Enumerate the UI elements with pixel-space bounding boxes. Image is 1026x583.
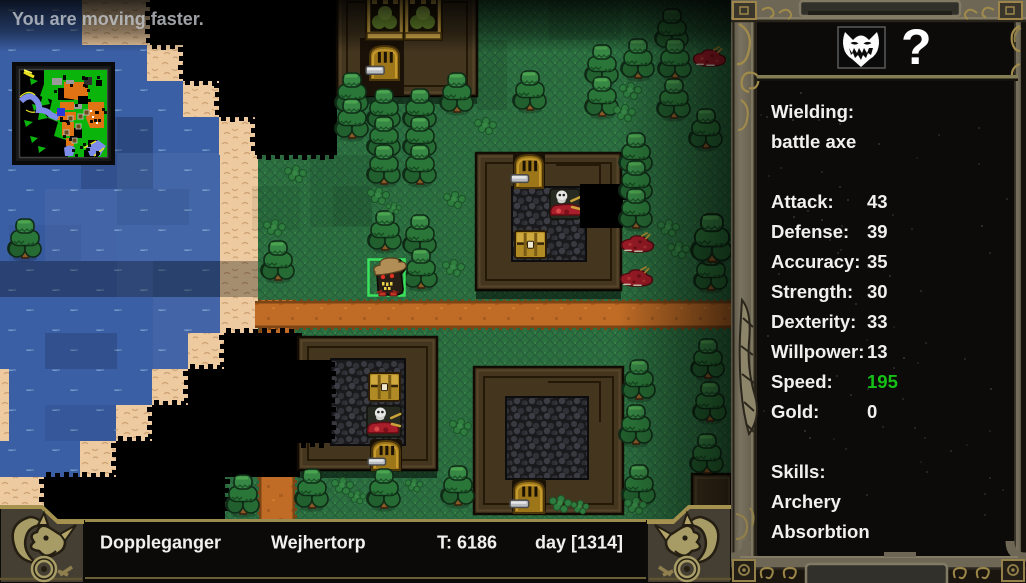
svg-text:39: 39 [867,221,888,242]
svg-text:Attack:: Attack: [771,191,834,212]
svg-text:33: 33 [867,311,888,332]
svg-text:Wejhertorp: Wejhertorp [271,533,366,553]
svg-text:Accuracy:: Accuracy: [771,251,860,272]
svg-text:Defense:: Defense: [771,221,849,242]
svg-text:day [1314]: day [1314] [535,533,623,553]
svg-text:battle axe: battle axe [771,131,856,152]
svg-text:Archery: Archery [771,491,842,512]
svg-text:Willpower:: Willpower: [771,341,864,362]
svg-text:You are moving faster.: You are moving faster. [12,9,204,29]
svg-text:Skills:: Skills: [771,461,826,482]
svg-text:Doppleganger: Doppleganger [100,533,221,553]
svg-text:Wielding:: Wielding: [771,101,854,122]
svg-text:Dexterity:: Dexterity: [771,311,856,332]
svg-text:Absorbtion: Absorbtion [771,521,870,542]
svg-text:?: ? [901,19,932,75]
svg-text:Gold:: Gold: [771,401,819,422]
svg-text:30: 30 [867,281,888,302]
svg-text:195: 195 [867,371,898,392]
svg-text:T: 6186: T: 6186 [437,533,497,553]
svg-text:Strength:: Strength: [771,281,853,302]
svg-text:Speed:: Speed: [771,371,833,392]
svg-text:13: 13 [867,341,888,362]
svg-text:0: 0 [867,401,877,422]
svg-text:43: 43 [867,191,888,212]
svg-text:35: 35 [867,251,888,272]
